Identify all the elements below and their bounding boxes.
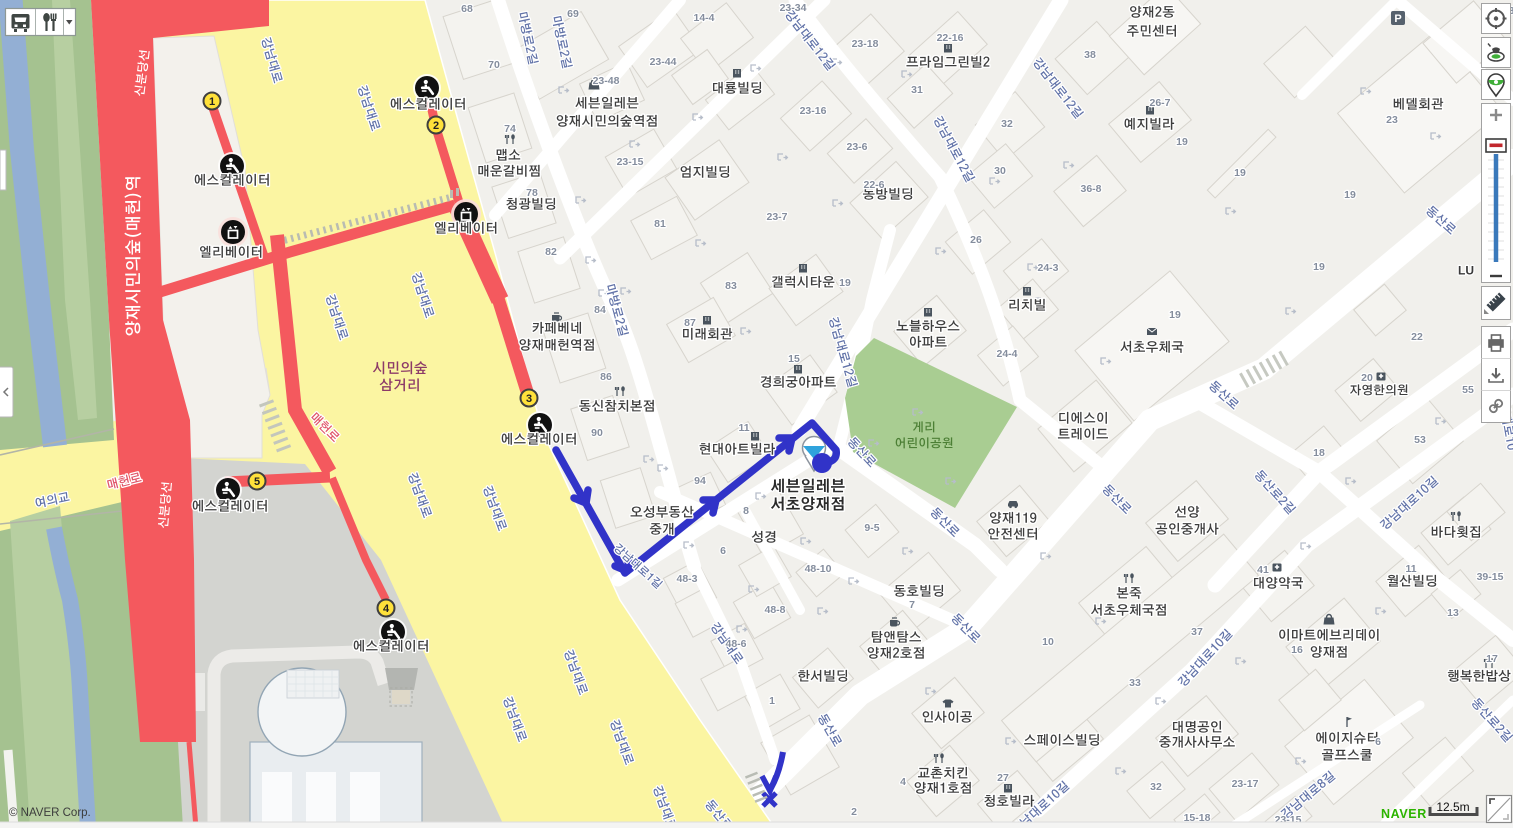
svg-text:19: 19 (839, 277, 851, 289)
svg-text:19: 19 (1344, 189, 1356, 201)
svg-text:74: 74 (504, 123, 516, 135)
svg-text:26: 26 (970, 234, 982, 246)
svg-text:84: 84 (594, 304, 606, 316)
svg-text:90: 90 (591, 427, 603, 439)
svg-text:24-4: 24-4 (996, 348, 1017, 360)
svg-text:19: 19 (1313, 261, 1325, 273)
svg-text:5: 5 (254, 476, 260, 488)
svg-text:24-3: 24-3 (1037, 262, 1058, 274)
svg-text:23: 23 (1386, 114, 1398, 126)
svg-text:53: 53 (1414, 434, 1426, 446)
svg-text:13: 13 (1447, 607, 1459, 619)
svg-text:23-18: 23-18 (852, 38, 879, 50)
svg-text:19: 19 (1169, 309, 1181, 321)
svg-text:6: 6 (720, 545, 726, 557)
svg-text:17: 17 (1486, 653, 1498, 665)
svg-text:2: 2 (433, 120, 439, 132)
svg-text:32: 32 (1150, 781, 1162, 793)
svg-text:22-6: 22-6 (863, 179, 884, 191)
svg-text:11: 11 (738, 422, 749, 434)
svg-text:P: P (1394, 13, 1401, 25)
svg-text:83: 83 (725, 280, 737, 292)
svg-text:LU: LU (1458, 263, 1474, 277)
svg-text:6: 6 (1375, 736, 1381, 748)
svg-text:3: 3 (526, 393, 532, 405)
svg-text:© NAVER Corp.: © NAVER Corp. (9, 807, 91, 819)
svg-text:69: 69 (567, 8, 579, 20)
svg-text:41: 41 (1257, 564, 1269, 576)
svg-text:26-7: 26-7 (1149, 97, 1170, 109)
svg-text:87: 87 (684, 317, 696, 329)
svg-text:31: 31 (911, 84, 923, 96)
svg-text:23-6: 23-6 (846, 141, 867, 153)
svg-text:8: 8 (743, 505, 749, 517)
svg-text:4: 4 (383, 603, 390, 615)
svg-text:36-8: 36-8 (1080, 183, 1101, 195)
svg-text:23-44: 23-44 (650, 56, 677, 68)
svg-text:23-34: 23-34 (780, 2, 807, 14)
svg-text:30: 30 (994, 165, 1006, 177)
svg-text:55: 55 (1462, 384, 1474, 396)
svg-text:78: 78 (526, 187, 538, 199)
svg-text:22: 22 (1411, 331, 1423, 343)
svg-text:23-7: 23-7 (766, 211, 787, 223)
svg-text:23-17: 23-17 (1232, 778, 1259, 790)
svg-text:81: 81 (654, 218, 666, 230)
svg-text:2: 2 (851, 806, 857, 818)
svg-text:11: 11 (1405, 563, 1416, 575)
svg-text:68: 68 (461, 3, 473, 15)
svg-text:12.5m: 12.5m (1436, 800, 1469, 814)
svg-text:4: 4 (900, 776, 906, 788)
svg-text:48-10: 48-10 (805, 563, 832, 575)
svg-text:1: 1 (769, 695, 775, 707)
svg-text:23-48: 23-48 (593, 75, 620, 87)
svg-text:14-4: 14-4 (693, 12, 714, 24)
svg-text:33: 33 (1129, 677, 1141, 689)
svg-text:32: 32 (1001, 118, 1013, 130)
svg-text:94: 94 (694, 475, 706, 487)
svg-text:23-16: 23-16 (800, 105, 827, 117)
svg-text:19: 19 (1234, 167, 1246, 179)
svg-text:38: 38 (1084, 49, 1096, 61)
svg-text:82: 82 (545, 246, 557, 258)
svg-text:16: 16 (1291, 644, 1303, 656)
svg-text:48-3: 48-3 (676, 573, 697, 585)
svg-text:18: 18 (1313, 447, 1325, 459)
svg-text:48-8: 48-8 (764, 604, 785, 616)
svg-text:23-15: 23-15 (617, 156, 644, 168)
svg-text:10: 10 (1042, 636, 1054, 648)
svg-text:22-16: 22-16 (937, 32, 964, 44)
svg-text:27: 27 (997, 772, 1009, 784)
svg-text:86: 86 (600, 371, 612, 383)
svg-text:7: 7 (909, 599, 915, 611)
svg-text:70: 70 (488, 59, 500, 71)
svg-text:15: 15 (788, 353, 800, 365)
svg-text:20: 20 (1361, 372, 1373, 384)
svg-text:37: 37 (1191, 626, 1203, 638)
svg-text:9-5: 9-5 (864, 522, 879, 534)
svg-text:48-6: 48-6 (725, 638, 746, 650)
svg-text:39-15: 39-15 (1477, 571, 1504, 583)
svg-text:NAVER: NAVER (1381, 807, 1427, 821)
svg-text:19: 19 (1176, 136, 1188, 148)
svg-text:1: 1 (209, 96, 215, 108)
